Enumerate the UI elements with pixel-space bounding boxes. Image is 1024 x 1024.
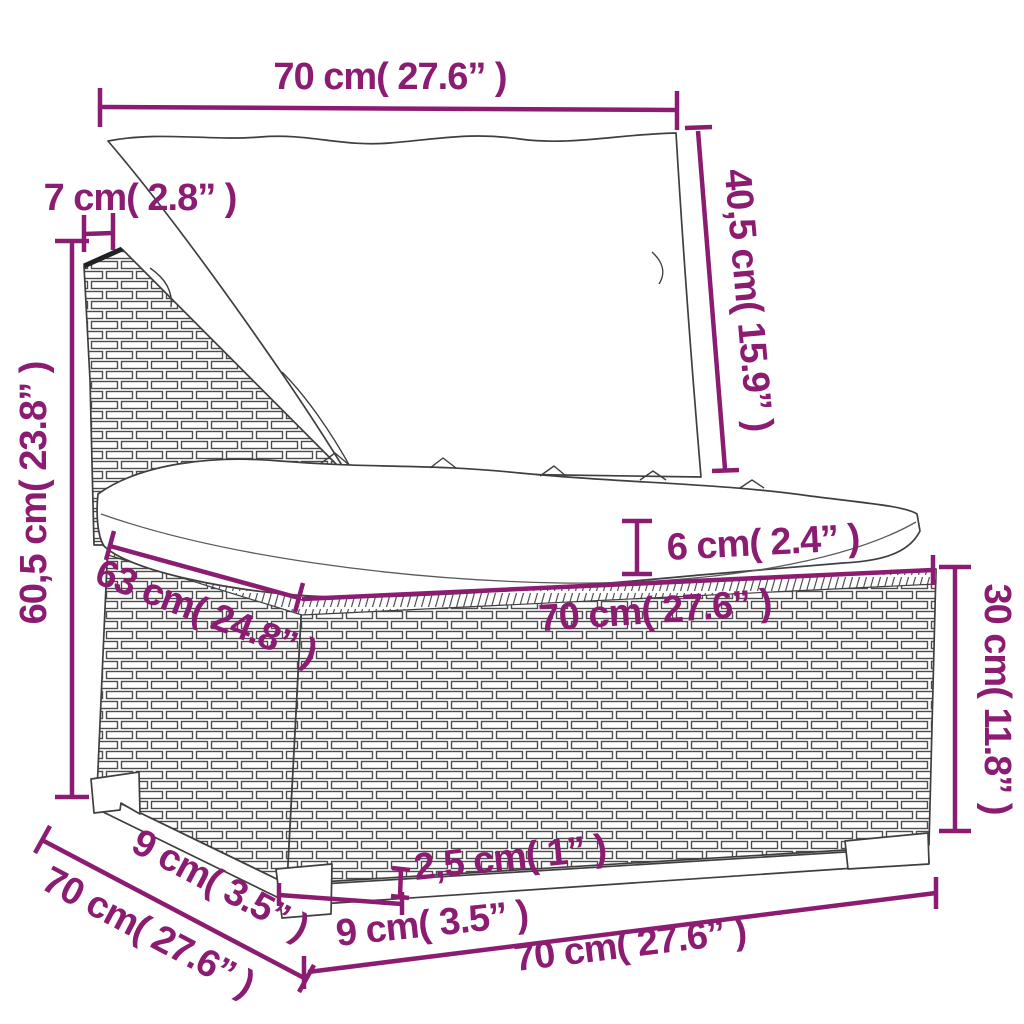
leg-back-left <box>91 772 140 814</box>
dimension-diagram: 70 cm( 27.6” ) 7 cm( 2.8” ) 60,5 cm( 23.… <box>0 0 1024 1024</box>
dim-label-back-cushion-width: 70 cm( 27.6” ) <box>273 58 506 96</box>
dim-line-total-height <box>55 241 89 797</box>
dim-label-seat-cushion-thickness: 6 cm( 2.4” ) <box>666 519 861 567</box>
dim-line-base-height <box>939 567 971 831</box>
dim-label-back-frame-thickness: 7 cm( 2.8” ) <box>44 179 237 217</box>
dim-label-total-height: 60,5 cm( 23.8” ) <box>15 362 53 625</box>
dim-label-base-height: 30 cm( 11.8” ) <box>978 583 1016 814</box>
